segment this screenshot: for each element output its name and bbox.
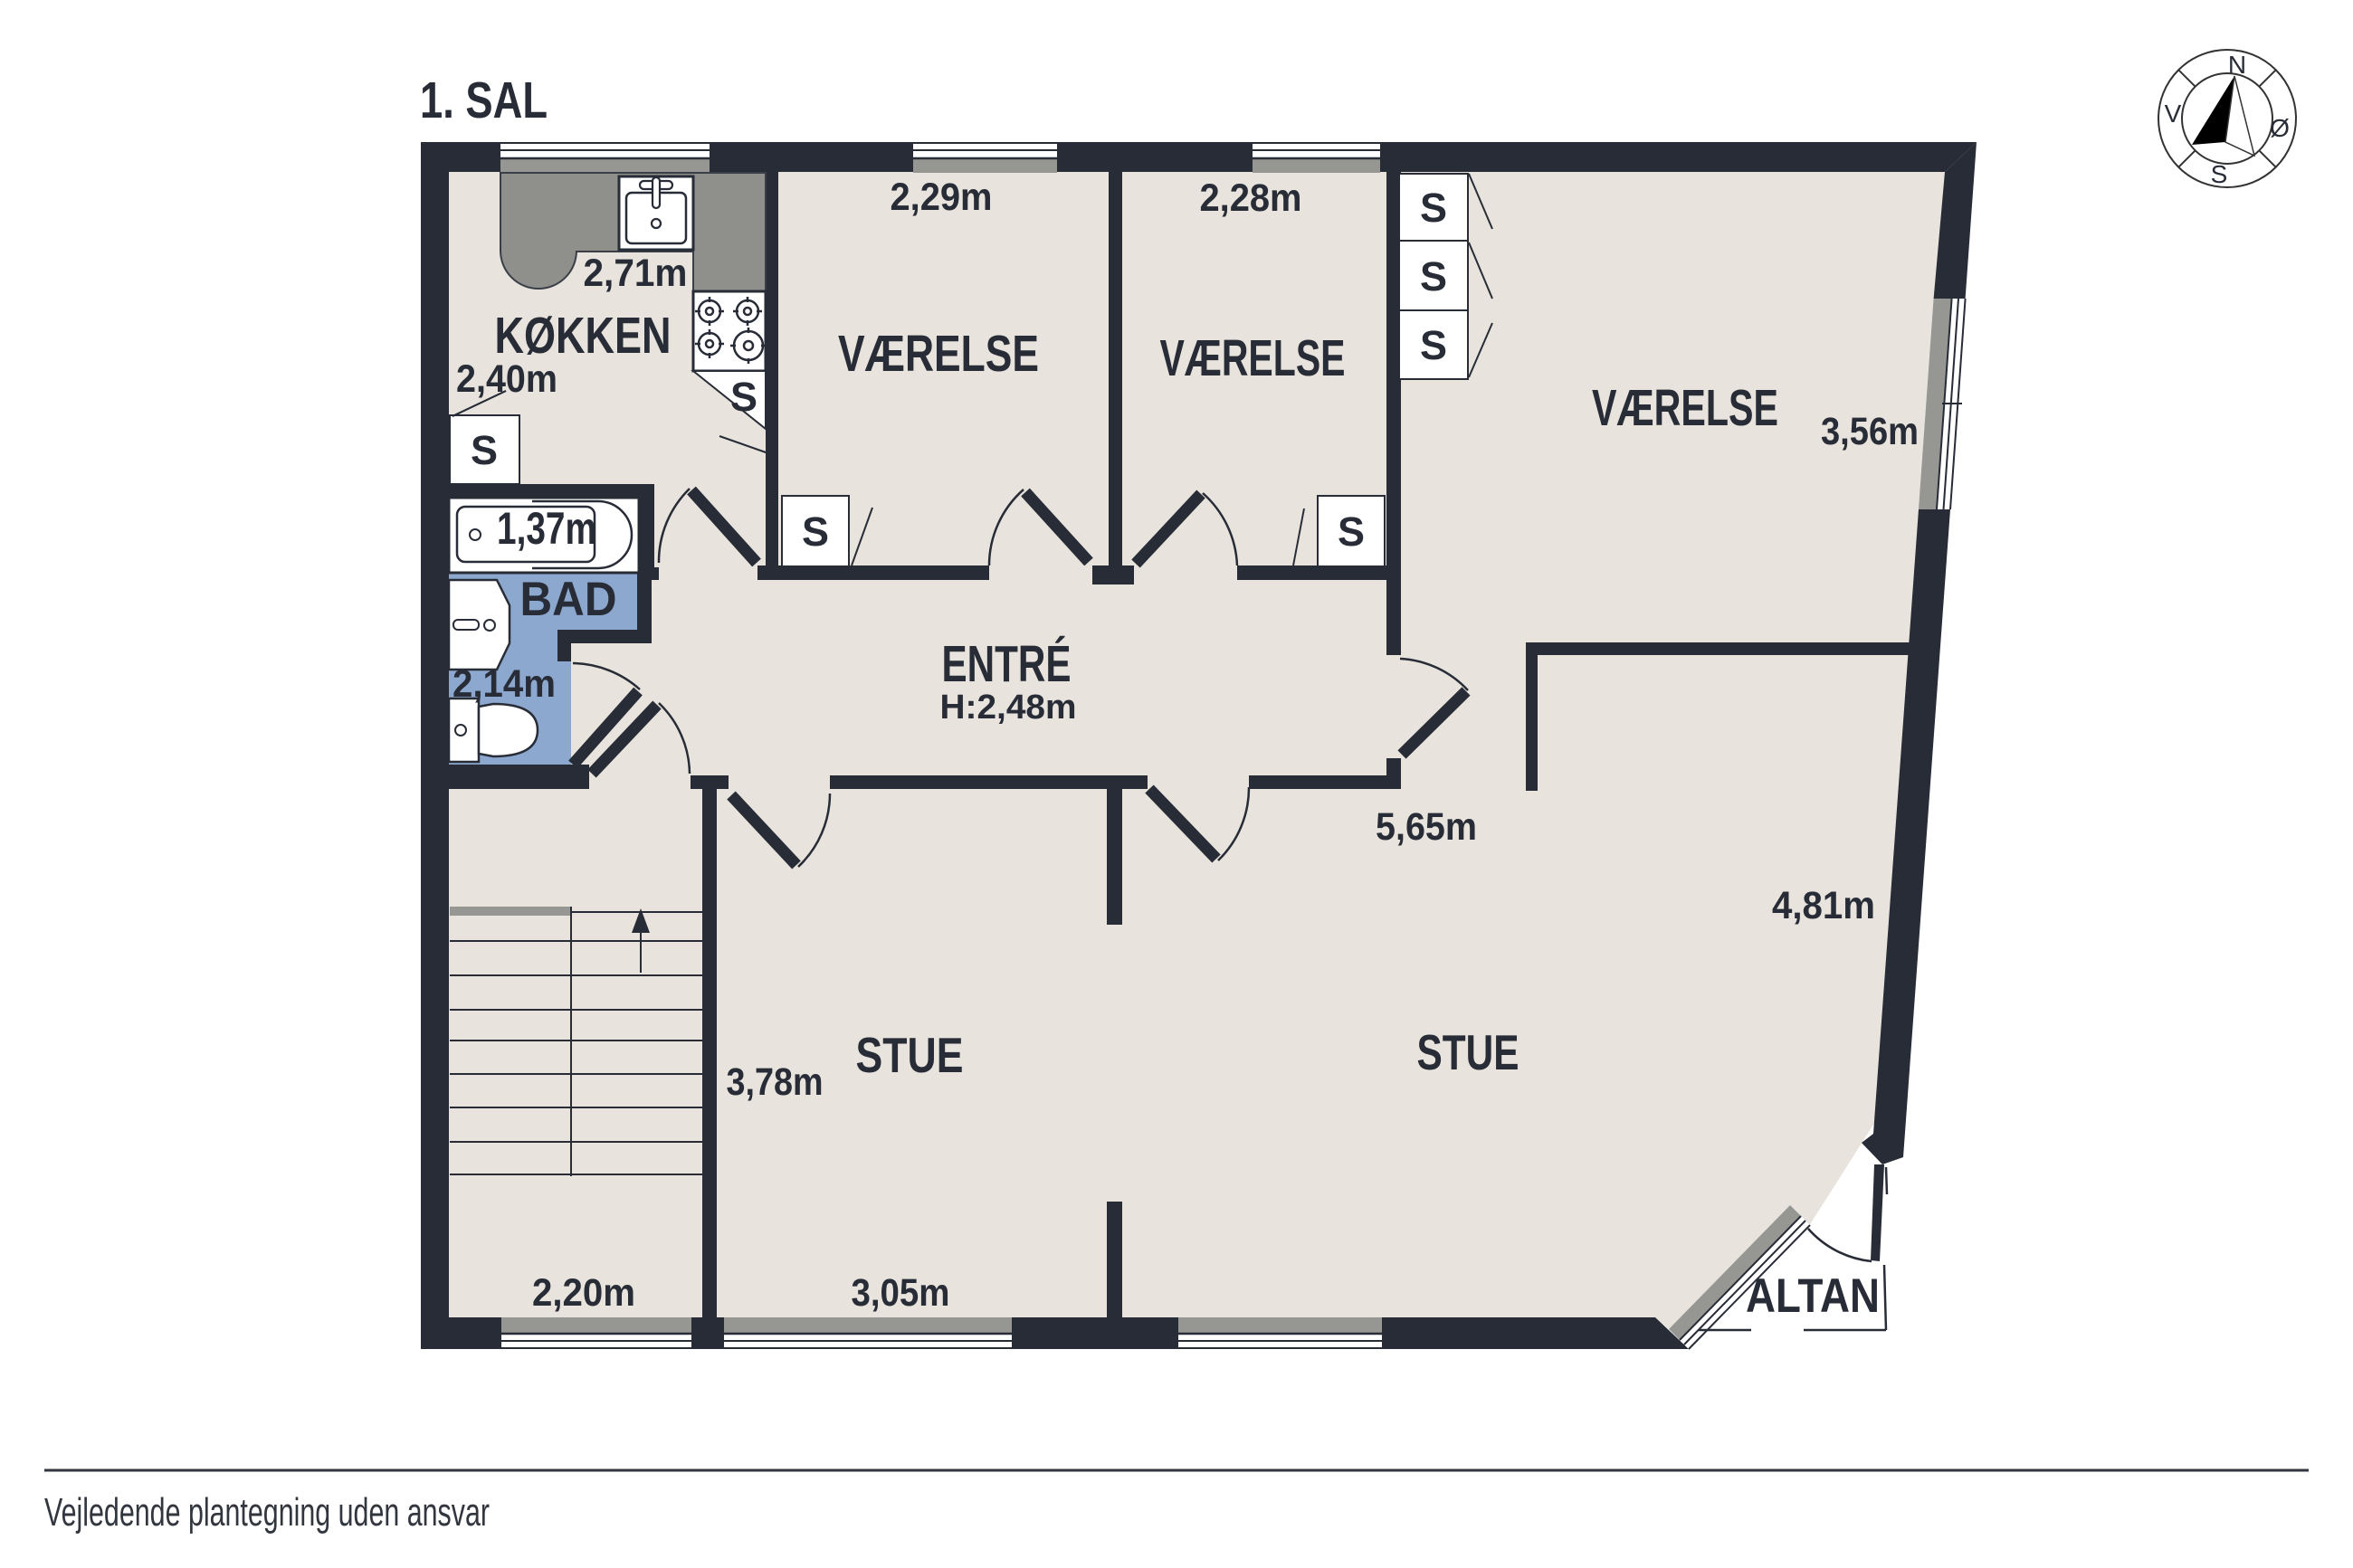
svg-text:S: S [802,508,829,555]
svg-text:2,71m: 2,71m [584,252,688,295]
svg-text:STUE: STUE [1417,1024,1519,1080]
svg-text:S: S [1420,253,1447,299]
svg-text:2,14m: 2,14m [452,662,556,706]
svg-text:S: S [730,374,757,420]
svg-text:N: N [2228,51,2246,79]
svg-text:STUE: STUE [856,1027,964,1083]
svg-text:S: S [1420,322,1447,368]
svg-text:1,37m: 1,37m [497,503,596,554]
svg-text:ALTAN: ALTAN [1746,1269,1880,1323]
svg-text:S: S [2211,160,2228,188]
svg-text:KØKKEN: KØKKEN [495,307,672,365]
svg-text:3,05m: 3,05m [852,1271,950,1315]
svg-text:VÆRELSE: VÆRELSE [838,325,1039,383]
svg-text:Vejledende plantegning uden an: Vejledende plantegning uden ansvar [44,1490,490,1535]
svg-text:VÆRELSE: VÆRELSE [1592,379,1778,437]
svg-text:Ø: Ø [2270,114,2290,142]
svg-text:S: S [1338,508,1365,555]
svg-text:ENTRÉ: ENTRÉ [942,635,1072,693]
svg-text:2,28m: 2,28m [1200,176,1302,220]
svg-text:VÆRELSE: VÆRELSE [1160,329,1346,387]
svg-text:3,56m: 3,56m [1821,410,1919,453]
svg-text:2,40m: 2,40m [456,357,557,401]
svg-text:2,29m: 2,29m [891,176,993,219]
svg-text:4,81m: 4,81m [1772,884,1875,927]
svg-text:S: S [1420,185,1447,231]
svg-text:BAD: BAD [520,573,617,626]
svg-text:1. SAL: 1. SAL [420,71,548,129]
svg-text:2,20m: 2,20m [532,1271,635,1315]
svg-text:3,78m: 3,78m [727,1060,824,1104]
svg-text:S: S [471,427,498,473]
svg-text:H:2,48m: H:2,48m [940,689,1077,727]
svg-text:V: V [2165,100,2182,128]
svg-text:5,65m: 5,65m [1376,805,1477,849]
